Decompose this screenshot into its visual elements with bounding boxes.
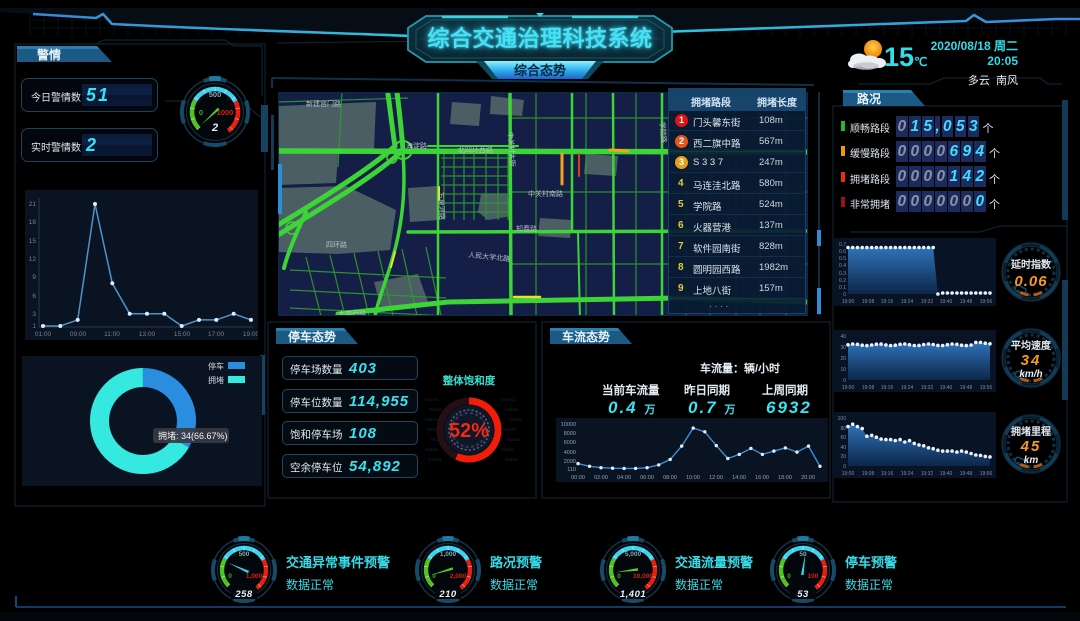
svg-text:停车态势: 停车态势 — [288, 329, 336, 344]
svg-text:01101: 01101 — [501, 397, 515, 403]
svg-text:15: 15 — [29, 238, 37, 245]
svg-text:17:00: 17:00 — [208, 331, 225, 338]
svg-text:19:32: 19:32 — [921, 299, 934, 305]
svg-text:50: 50 — [799, 551, 807, 558]
svg-text:16:00: 16:00 — [755, 475, 769, 481]
svg-text:0: 0 — [228, 573, 232, 580]
svg-text:19:16: 19:16 — [881, 471, 894, 477]
svg-text:10: 10 — [840, 367, 846, 373]
svg-text:60: 60 — [840, 435, 846, 441]
svg-text:19:16: 19:16 — [881, 299, 894, 305]
svg-text:0: 0 — [617, 573, 621, 580]
svg-text:5,000: 5,000 — [625, 551, 642, 558]
svg-text:210: 210 — [438, 589, 457, 600]
svg-text:19:08: 19:08 — [862, 299, 875, 305]
svg-text:01101: 01101 — [429, 407, 443, 413]
svg-text:19:08: 19:08 — [862, 471, 875, 477]
svg-text:拥堵: 拥堵 — [208, 375, 224, 385]
svg-text:拥堵里程: 拥堵里程 — [1011, 425, 1051, 438]
svg-text:45: 45 — [1020, 438, 1042, 455]
svg-text:km: km — [1024, 455, 1039, 466]
svg-text:整体饱和度: 整体饱和度 — [442, 374, 496, 387]
svg-text:北四环西路: 北四环西路 — [458, 145, 493, 154]
svg-text:海淀路: 海淀路 — [406, 141, 427, 150]
svg-text:19:00: 19:00 — [842, 299, 855, 305]
svg-text:19:40: 19:40 — [940, 299, 953, 305]
svg-text:100: 100 — [838, 416, 847, 422]
svg-text:延时指数: 延时指数 — [1010, 258, 1052, 271]
svg-text:0.2: 0.2 — [839, 278, 846, 284]
svg-text:08:00: 08:00 — [663, 475, 677, 481]
svg-text:19:48: 19:48 — [960, 299, 973, 305]
svg-text:20:00: 20:00 — [801, 475, 815, 481]
svg-text:12: 12 — [29, 256, 37, 263]
svg-text:19:48: 19:48 — [960, 385, 973, 391]
svg-text:0.5: 0.5 — [839, 256, 846, 262]
svg-text:1,401: 1,401 — [620, 589, 646, 600]
svg-text:大学西路: 大学西路 — [338, 309, 366, 316]
svg-text:10:00: 10:00 — [686, 475, 700, 481]
svg-text:01101: 01101 — [501, 447, 515, 453]
svg-text:53: 53 — [797, 589, 809, 600]
svg-text:10,000: 10,000 — [633, 573, 653, 580]
svg-text:19:24: 19:24 — [901, 471, 914, 477]
svg-text:01:00: 01:00 — [35, 331, 52, 338]
svg-text:0: 0 — [787, 573, 791, 580]
svg-text:四环路: 四环路 — [326, 240, 347, 249]
svg-text:19:32: 19:32 — [921, 471, 934, 477]
svg-text:km/h: km/h — [1019, 369, 1042, 380]
svg-text:2,000: 2,000 — [450, 573, 467, 580]
svg-text:拥堵: 34(66.67%): 拥堵: 34(66.67%) — [158, 430, 228, 441]
svg-text:06:00: 06:00 — [640, 475, 654, 481]
svg-text:19:32: 19:32 — [921, 385, 934, 391]
svg-text:110: 110 — [567, 467, 576, 473]
svg-text:01101: 01101 — [505, 457, 519, 463]
svg-text:0.1: 0.1 — [839, 285, 846, 291]
svg-text:01101: 01101 — [425, 397, 439, 403]
svg-text:0.06: 0.06 — [1014, 273, 1047, 290]
svg-text:19:24: 19:24 — [901, 299, 914, 305]
svg-text:19:00: 19:00 — [243, 331, 258, 338]
svg-text:34: 34 — [1021, 352, 1042, 369]
svg-text:19:56: 19:56 — [980, 385, 993, 391]
svg-text:10000: 10000 — [561, 422, 576, 428]
svg-text:18: 18 — [29, 219, 37, 226]
svg-text:新建宫门路: 新建宫门路 — [306, 99, 341, 108]
svg-text:01101: 01101 — [503, 427, 517, 433]
svg-text:3: 3 — [32, 311, 36, 318]
svg-text:警情: 警情 — [36, 47, 61, 62]
svg-text:13:00: 13:00 — [139, 331, 156, 338]
svg-text:01101: 01101 — [505, 407, 519, 413]
svg-text:19:56: 19:56 — [980, 471, 993, 477]
svg-text:52%: 52% — [449, 420, 489, 442]
svg-text:8000: 8000 — [564, 431, 576, 437]
svg-text:0.7: 0.7 — [839, 242, 846, 248]
svg-text:01101: 01101 — [507, 437, 521, 443]
svg-text:18:00: 18:00 — [778, 475, 792, 481]
svg-text:21: 21 — [29, 201, 37, 208]
svg-text:19:40: 19:40 — [940, 471, 953, 477]
svg-text:20: 20 — [840, 454, 846, 460]
svg-text:6: 6 — [32, 293, 36, 300]
svg-text:19:16: 19:16 — [881, 385, 894, 391]
svg-text:500: 500 — [239, 551, 250, 558]
svg-text:80: 80 — [840, 426, 846, 432]
svg-text:0: 0 — [843, 378, 846, 384]
svg-text:258: 258 — [234, 589, 253, 600]
svg-text:0.3: 0.3 — [839, 271, 846, 277]
svg-text:30: 30 — [840, 345, 846, 351]
svg-text:40: 40 — [840, 334, 846, 340]
svg-text:04:00: 04:00 — [617, 475, 631, 481]
svg-text:09:00: 09:00 — [70, 331, 87, 338]
svg-text:1,000: 1,000 — [246, 573, 263, 580]
svg-text:6000: 6000 — [564, 440, 576, 446]
svg-text:00:00: 00:00 — [571, 475, 585, 481]
svg-text:知春路: 知春路 — [516, 224, 537, 233]
svg-text:14:00: 14:00 — [732, 475, 746, 481]
svg-text:02:00: 02:00 — [594, 475, 608, 481]
svg-text:1,000: 1,000 — [440, 551, 457, 558]
svg-text:2: 2 — [211, 122, 218, 134]
svg-text:19:24: 19:24 — [901, 385, 914, 391]
svg-text:100: 100 — [808, 573, 819, 580]
svg-text:01101: 01101 — [428, 457, 442, 463]
svg-text:停车: 停车 — [208, 361, 224, 371]
svg-text:01101: 01101 — [425, 417, 439, 423]
svg-text:40: 40 — [840, 445, 846, 451]
svg-text:11:00: 11:00 — [104, 331, 120, 338]
svg-text:01101: 01101 — [509, 417, 523, 423]
svg-text:0.4: 0.4 — [839, 263, 846, 269]
svg-text:4000: 4000 — [564, 450, 576, 456]
svg-text:01101: 01101 — [425, 447, 439, 453]
svg-text:中关村南路: 中关村南路 — [528, 189, 563, 198]
svg-text:19:00: 19:00 — [842, 471, 855, 477]
svg-text:车流态势: 车流态势 — [562, 329, 610, 344]
svg-text:路况: 路况 — [857, 91, 881, 106]
svg-text:12:00: 12:00 — [709, 475, 723, 481]
svg-text:500: 500 — [209, 90, 222, 99]
svg-text:0: 0 — [199, 108, 203, 117]
svg-text:19:08: 19:08 — [862, 385, 875, 391]
svg-text:0: 0 — [843, 464, 846, 470]
svg-text:1: 1 — [32, 323, 36, 330]
svg-text:9: 9 — [32, 274, 36, 281]
svg-text:0: 0 — [843, 292, 846, 298]
svg-text:平均速度: 平均速度 — [1011, 339, 1052, 352]
svg-text:15:00: 15:00 — [174, 331, 191, 338]
svg-text:2000: 2000 — [564, 459, 576, 465]
svg-text:19:00: 19:00 — [842, 385, 855, 391]
svg-text:19:56: 19:56 — [980, 299, 993, 305]
svg-text:19:40: 19:40 — [940, 385, 953, 391]
svg-text:19:48: 19:48 — [960, 471, 973, 477]
svg-text:0.6: 0.6 — [839, 249, 846, 255]
svg-text:20: 20 — [840, 356, 846, 362]
